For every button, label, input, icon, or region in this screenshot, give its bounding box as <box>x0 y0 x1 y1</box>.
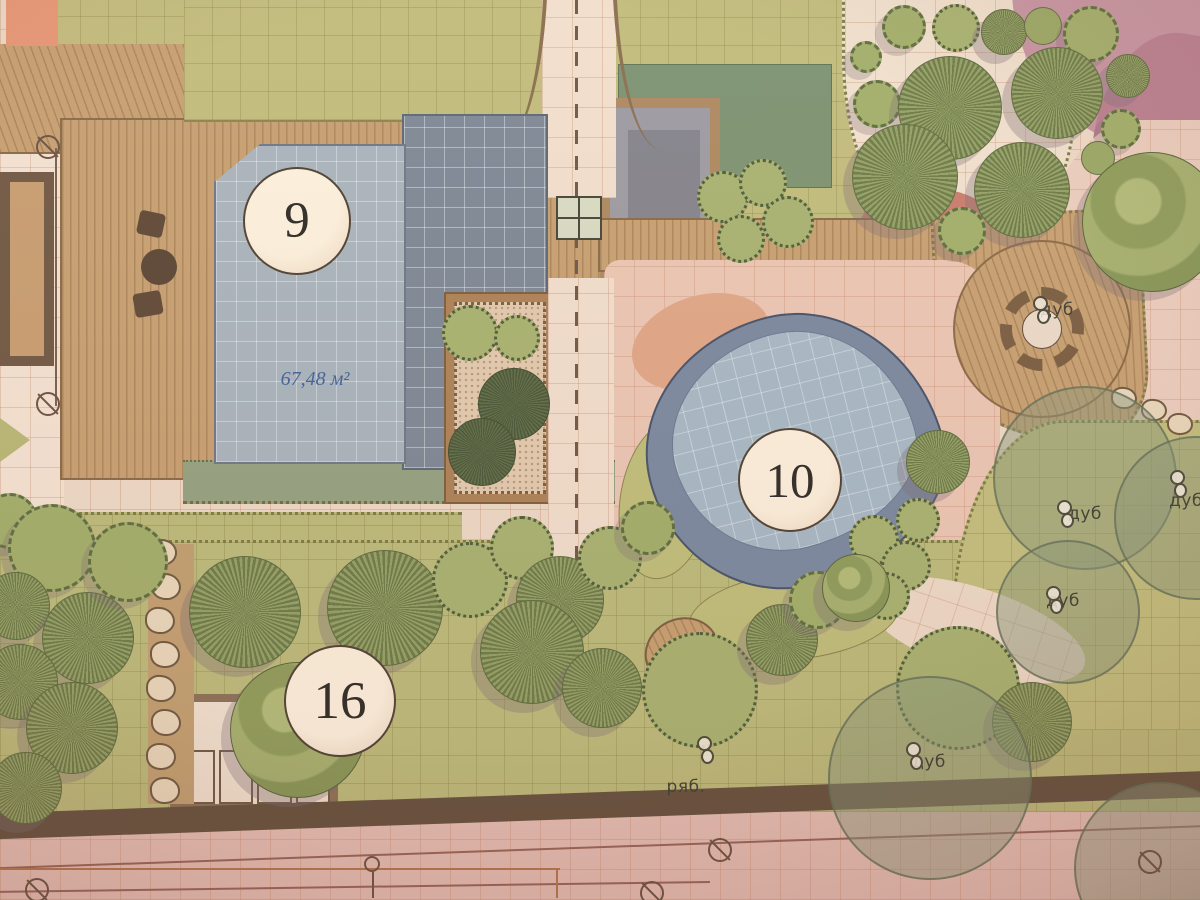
tree-symbol <box>494 315 540 361</box>
tree-symbol <box>621 501 675 555</box>
tree-symbol <box>448 418 516 486</box>
tree-symbol <box>932 4 980 52</box>
tree-symbol <box>642 632 758 748</box>
survey-marker <box>708 838 732 862</box>
tree-symbol <box>981 9 1027 55</box>
tree-symbol <box>822 554 890 622</box>
tree-symbol <box>853 80 901 128</box>
landscape-plan-photo: 67,48 м² 91016дубдубдубдубдубряб. <box>0 0 1200 900</box>
tree-symbol <box>850 41 882 73</box>
tree-symbol <box>906 430 970 494</box>
tree-symbol <box>896 498 940 542</box>
small-tree-glyph <box>1057 500 1072 515</box>
stepping-stone <box>151 708 181 736</box>
stepping-stone <box>146 743 176 770</box>
stepping-stone <box>149 775 181 804</box>
survey-marker <box>36 392 60 416</box>
tree-symbol <box>1024 7 1062 45</box>
tree-symbol <box>974 142 1070 238</box>
survey-marker <box>36 135 60 159</box>
survey-marker <box>640 881 664 900</box>
tree-symbol <box>1011 47 1103 139</box>
small-tree-glyph <box>1046 586 1061 601</box>
tree-symbol <box>562 648 642 728</box>
stepping-stone <box>146 674 177 702</box>
small-tree-glyph <box>906 742 921 757</box>
plant-label: ряб. <box>667 777 706 797</box>
oak-canopy <box>1074 782 1200 900</box>
survey-marker <box>25 878 49 900</box>
plan-symbols: 91016дубдубдубдубдубряб. <box>0 0 1200 900</box>
small-tree-glyph <box>1170 470 1185 485</box>
tree-symbol <box>189 556 301 668</box>
lamp-marker-stem <box>372 872 374 898</box>
tree-symbol <box>882 5 926 49</box>
tree-symbol <box>88 522 168 602</box>
small-tree-glyph <box>697 736 712 751</box>
stepping-stone <box>150 641 180 668</box>
oak-canopy <box>996 540 1140 684</box>
tree-symbol <box>717 215 765 263</box>
tree-symbol <box>1106 54 1150 98</box>
tree-symbol <box>442 305 498 361</box>
stepping-stone <box>144 606 175 635</box>
zone-number-circle: 9 <box>243 167 351 275</box>
tree-symbol <box>852 124 958 230</box>
zone-number-circle: 16 <box>284 645 396 757</box>
lamp-marker <box>364 856 380 872</box>
small-tree-glyph <box>1033 296 1048 311</box>
tree-symbol <box>762 196 814 248</box>
oak-canopy <box>828 676 1032 880</box>
zone-number-circle: 10 <box>738 428 842 532</box>
survey-marker <box>1138 850 1162 874</box>
stepping-stone <box>1167 413 1193 435</box>
tree-symbol <box>938 207 986 255</box>
